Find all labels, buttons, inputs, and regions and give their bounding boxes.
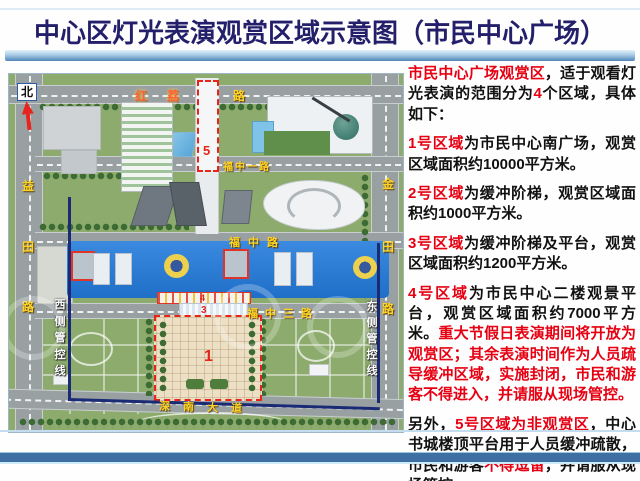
north-indicator: 北 xyxy=(17,83,37,101)
panel-paragraph: 市民中心广场观赏区，适于观看灯光表演的范围分为4个区域，具体如下： xyxy=(408,64,636,125)
roof-disc xyxy=(164,254,189,278)
label-char: 益 xyxy=(22,177,34,194)
text-segment: 市民中心广场观赏区 xyxy=(408,65,545,82)
text-segment: 1号区域 xyxy=(408,135,464,152)
label-char: 田 xyxy=(382,238,394,255)
label-char: 东 xyxy=(367,298,378,314)
road-label-yitian: 益田路 xyxy=(21,177,35,315)
roof-banner xyxy=(274,252,291,286)
building-youth-palace xyxy=(43,106,101,150)
plaza-hedge xyxy=(210,379,228,389)
building-striped-hall xyxy=(121,102,173,192)
bottom-hairline xyxy=(0,430,640,432)
label-char: 金 xyxy=(382,175,394,192)
text-segment: 重大节假日表演期间将开放为观赏区；其余表演时间作为人员疏导缓冲区域，实施封闭，市… xyxy=(408,325,636,403)
page-title: 中心区灯光表演观赏区域示意图（市民中心广场） xyxy=(0,13,640,50)
road-label-shennan: 深南大道 xyxy=(159,398,255,417)
zone-5-label: 5 xyxy=(203,144,210,157)
text-segment: 4 xyxy=(534,85,542,102)
label-char: 线 xyxy=(367,362,378,378)
road-label-hongli-main: 红荔 xyxy=(135,87,199,104)
text-segment: 3号区域 xyxy=(408,235,464,252)
bottom-divider-bar xyxy=(0,452,640,464)
panel-paragraph: 4号区域为市民中心二楼观景平台，观赏区域面积约7000平方米。重大节假日表演期间… xyxy=(408,284,636,406)
road-label-fuzhongyi: 福中一路 xyxy=(223,158,271,173)
park-pavilion xyxy=(309,364,329,376)
road-label-fuzhong: 福中路 xyxy=(229,234,286,250)
swirl-roof-detail xyxy=(287,188,341,224)
roof-banner xyxy=(296,252,313,286)
roof-banner xyxy=(115,253,132,285)
label-char: 控 xyxy=(367,346,378,362)
zone-1-label: 1 xyxy=(204,349,213,365)
boundary-line-west xyxy=(68,197,71,399)
park-path-ring xyxy=(69,332,113,366)
label-char: 路 xyxy=(382,300,394,317)
lawn xyxy=(264,131,330,155)
top-divider-bar xyxy=(5,50,635,61)
roof-disc xyxy=(353,256,377,279)
panel-paragraph: 1号区域为市民中心南广场，观赏区域面积约10000平方米。 xyxy=(408,134,636,175)
slide: 中心区灯光表演观赏区域示意图（市民中心广场） xyxy=(0,0,640,481)
panel-paragraph: 2号区域为缓冲阶梯，观赏区域面积约1000平方米。 xyxy=(408,184,636,225)
zone-4-label: 4 xyxy=(200,294,205,303)
road-label-hongli-tail: 路 xyxy=(233,87,245,104)
roof-screen xyxy=(223,249,249,279)
plaza-tree-column xyxy=(159,321,168,391)
roof-banner xyxy=(93,253,110,285)
watermark-ring xyxy=(215,284,281,350)
label-char: 线 xyxy=(55,362,66,378)
building-annex xyxy=(61,150,97,174)
watermark-ring xyxy=(307,296,369,358)
label-char: 田 xyxy=(22,238,34,255)
panel-paragraph: 另外，5号区域为非观赏区，中心书城楼顶平台用于人员缓冲疏散，市民和游客不得逗留，… xyxy=(408,415,636,481)
map-panel: 5 4 3 2 1 西侧管控线 东侧管控线 xyxy=(8,73,404,433)
panel-paragraph: 3号区域为缓冲阶梯及平台，观赏区域面积约1200平方米。 xyxy=(408,234,636,275)
text-segment: 2号区域 xyxy=(408,185,464,202)
road-label-jintian: 金田路 xyxy=(381,175,395,317)
roof-screen xyxy=(71,251,95,281)
info-panel: 市民中心广场观赏区，适于观看灯光表演的范围分为4个区域，具体如下：1号区域为市民… xyxy=(408,64,636,481)
plaza-hedge xyxy=(186,379,204,389)
tree-row xyxy=(19,418,397,428)
top-hairline xyxy=(0,8,640,10)
building-dark-tower xyxy=(221,190,253,224)
road-label-hongli: 红荔 路 xyxy=(135,87,245,104)
text-segment: 4号区域 xyxy=(408,285,469,302)
tree-column xyxy=(145,318,154,396)
